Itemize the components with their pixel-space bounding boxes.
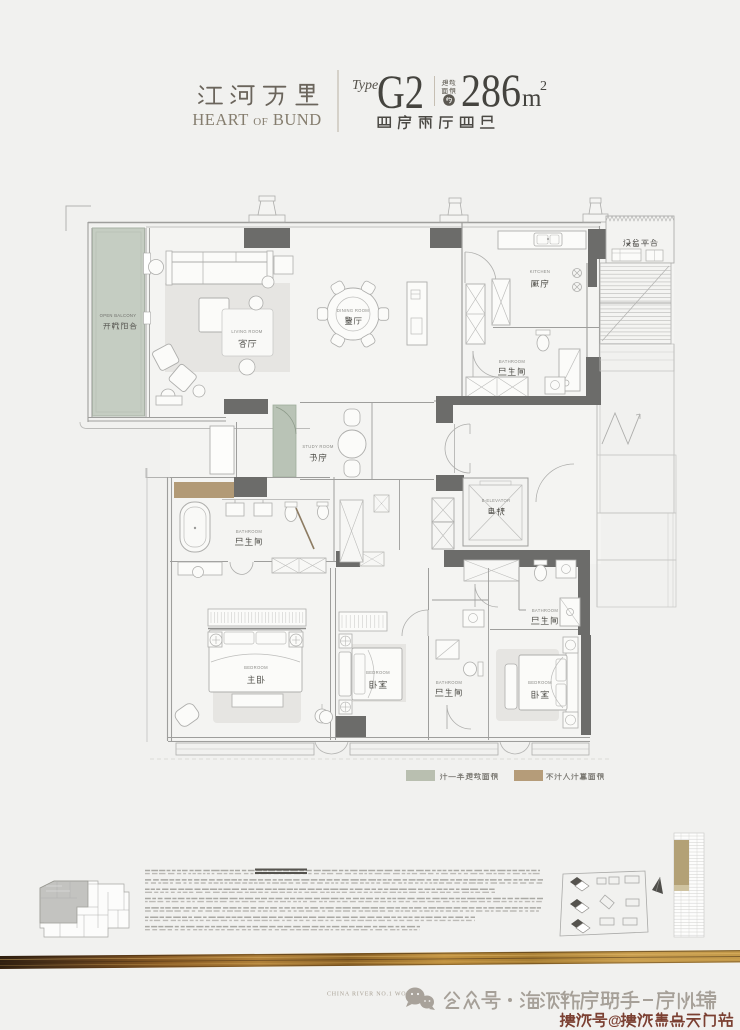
svg-text:BATHROOM: BATHROOM [532,608,558,613]
svg-text:286: 286 [461,65,521,117]
svg-text:BATHROOM: BATHROOM [436,680,462,685]
svg-text:OPEN BALCONY: OPEN BALCONY [100,313,137,318]
svg-text:CHINA RIVER NO.1 WORK: CHINA RIVER NO.1 WORK [327,992,416,998]
svg-text:LIVING ROOM: LIVING ROOM [231,329,262,334]
svg-text:G2: G2 [377,66,424,119]
svg-text:BEDROOM: BEDROOM [244,665,268,670]
svg-text:BATHROOM: BATHROOM [236,529,262,534]
svg-text:DINING ROOM: DINING ROOM [337,308,369,313]
svg-text:2: 2 [540,79,547,94]
svg-text:STUDY ROOM: STUDY ROOM [302,444,334,449]
svg-text:Type: Type [352,78,378,93]
svg-text:BEDROOM: BEDROOM [528,680,552,685]
svg-text:KITCHEN: KITCHEN [530,269,550,274]
svg-text:BATHROOM: BATHROOM [499,359,525,364]
svg-text:B-ELEVATOR: B-ELEVATOR [482,498,511,503]
svg-text:BEDROOM: BEDROOM [366,670,390,675]
svg-text:@: @ [608,1012,622,1028]
svg-text:m: m [522,85,542,112]
